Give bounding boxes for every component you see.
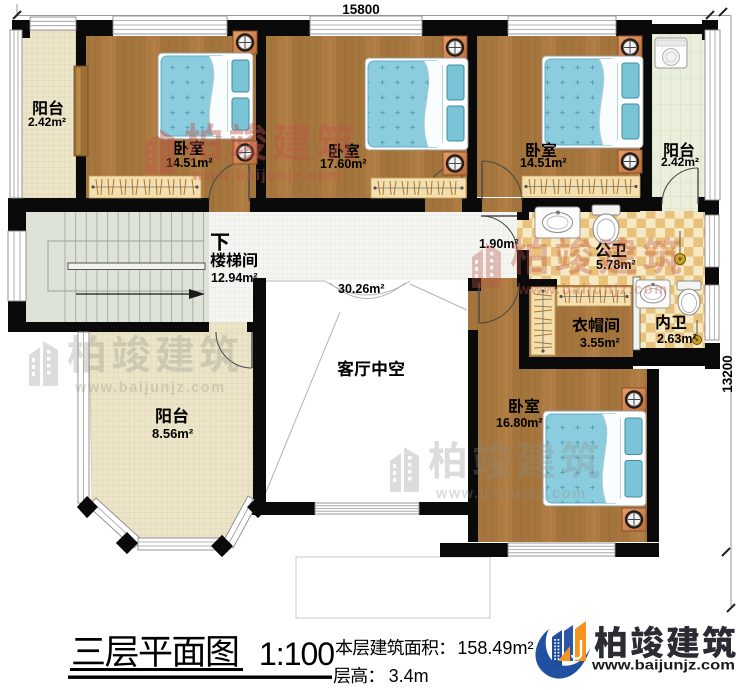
svg-text:15800: 15800 — [342, 2, 380, 17]
svg-text:14.51m²: 14.51m² — [520, 156, 567, 170]
svg-text:12.94m²: 12.94m² — [211, 271, 258, 285]
svg-text:16.80m²: 16.80m² — [496, 416, 543, 430]
svg-text:www.baijunjz.com: www.baijunjz.com — [591, 657, 735, 673]
svg-text:3.4m: 3.4m — [389, 666, 429, 686]
svg-text:3.55m²: 3.55m² — [580, 336, 620, 350]
svg-text:2.42m²: 2.42m² — [28, 115, 66, 129]
svg-text:8.56m²: 8.56m² — [152, 426, 194, 441]
svg-text:2.63m²: 2.63m² — [657, 332, 697, 346]
svg-text:30.26m²: 30.26m² — [338, 282, 385, 296]
svg-text:158.49m²: 158.49m² — [457, 638, 533, 658]
svg-text:1:100: 1:100 — [259, 636, 334, 672]
svg-text:13200: 13200 — [720, 355, 735, 393]
svg-text:2.42m²: 2.42m² — [661, 155, 699, 169]
